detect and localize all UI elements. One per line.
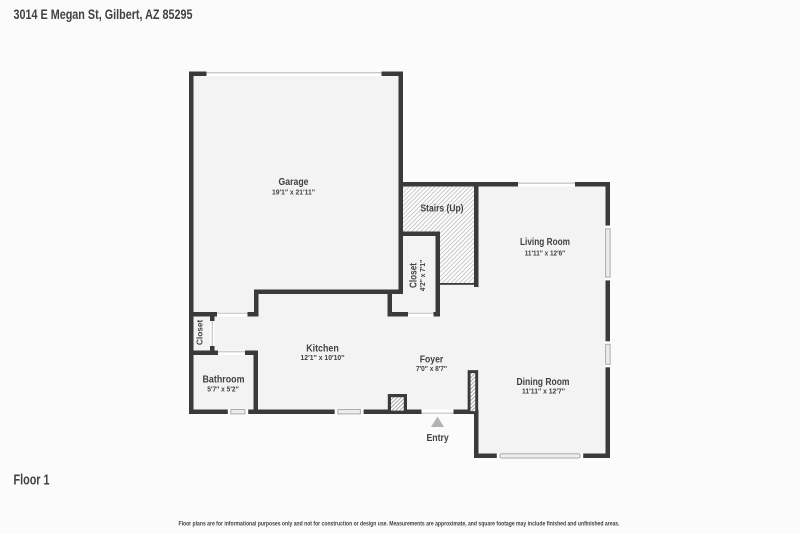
svg-text:7′0″ x 8′7″: 7′0″ x 8′7″ — [416, 364, 447, 373]
svg-text:19′1″ x 21′11″: 19′1″ x 21′11″ — [272, 188, 315, 197]
svg-text:Living Room: Living Room — [520, 236, 570, 248]
svg-text:Floor plans are for informatio: Floor plans are for informational purpos… — [179, 520, 620, 527]
svg-text:Floor 1: Floor 1 — [14, 472, 50, 488]
svg-text:Closet: Closet — [194, 320, 204, 346]
svg-text:Stairs (Up): Stairs (Up) — [421, 203, 464, 215]
svg-text:12′1″ x 10′10″: 12′1″ x 10′10″ — [301, 353, 345, 362]
svg-text:Garage: Garage — [279, 176, 309, 188]
svg-text:4′2″ x 7′1″: 4′2″ x 7′1″ — [418, 259, 427, 291]
svg-text:11′11″ x 12′7″: 11′11″ x 12′7″ — [522, 387, 565, 396]
svg-text:3014 E Megan St, Gilbert, AZ 8: 3014 E Megan St, Gilbert, AZ 85295 — [14, 7, 193, 22]
svg-text:Entry: Entry — [426, 432, 448, 444]
svg-text:11′11″ x 12′6″: 11′11″ x 12′6″ — [525, 248, 566, 257]
svg-text:5′7″ x 5′2″: 5′7″ x 5′2″ — [207, 384, 239, 393]
